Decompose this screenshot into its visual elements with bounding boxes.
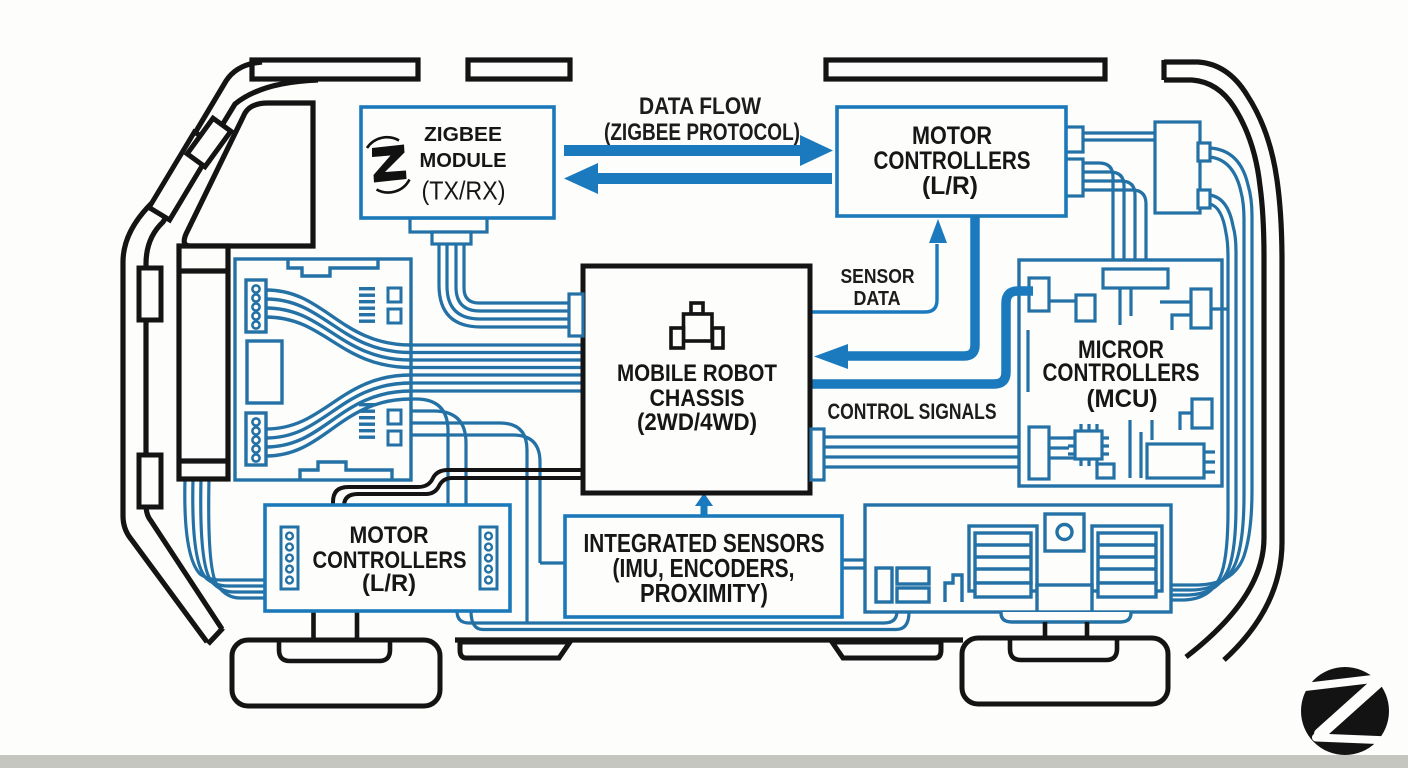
svg-text:(TX/RX): (TX/RX)	[422, 176, 506, 206]
svg-text:DATA: DATA	[854, 287, 901, 310]
svg-text:CONTROLLERS: CONTROLLERS	[1043, 359, 1200, 387]
svg-text:CONTROL SIGNALS: CONTROL SIGNALS	[828, 399, 997, 424]
svg-text:(L/R): (L/R)	[922, 172, 978, 200]
svg-text:(L/R): (L/R)	[362, 570, 416, 597]
svg-text:MODULE: MODULE	[420, 150, 507, 172]
svg-text:(MCU): (MCU)	[1087, 385, 1158, 413]
svg-text:MOTOR: MOTOR	[350, 522, 429, 549]
svg-text:CHASSIS: CHASSIS	[650, 385, 745, 412]
svg-text:MOBILE ROBOT: MOBILE ROBOT	[617, 360, 777, 387]
svg-text:ZIGBEE: ZIGBEE	[424, 124, 502, 146]
svg-text:SENSOR: SENSOR	[841, 265, 915, 288]
svg-text:MOTOR: MOTOR	[912, 122, 992, 150]
svg-text:DATA FLOW: DATA FLOW	[639, 93, 761, 120]
svg-text:(IMU, ENCODERS,: (IMU, ENCODERS,	[613, 555, 795, 583]
svg-text:INTEGRATED SENSORS: INTEGRATED SENSORS	[584, 530, 825, 558]
svg-text:(ZIGBEE PROTOCOL): (ZIGBEE PROTOCOL)	[604, 119, 800, 146]
svg-text:PROXIMITY): PROXIMITY)	[640, 580, 768, 608]
svg-text:CONTROLLERS: CONTROLLERS	[874, 147, 1031, 175]
svg-text:(2WD/4WD): (2WD/4WD)	[637, 409, 757, 436]
